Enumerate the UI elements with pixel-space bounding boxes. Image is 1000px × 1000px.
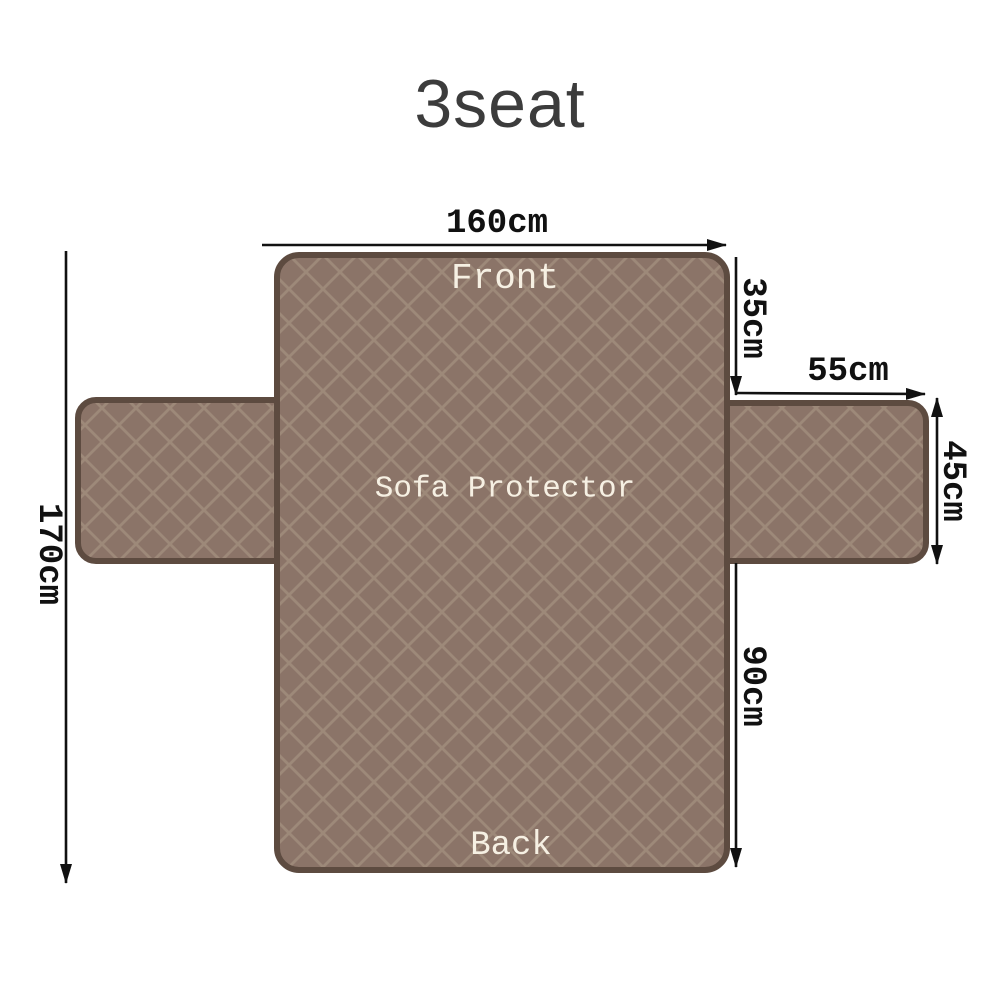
sofa-cover-body	[277, 255, 727, 870]
dimension-label-length-total: 170cm	[31, 503, 65, 605]
fabric-label-front: Front	[451, 261, 559, 297]
fabric-label-back: Back	[470, 829, 552, 863]
dimension-label-width-total: 160cm	[446, 207, 548, 241]
page-title: 3seat	[414, 70, 585, 138]
sofa-cover-shape	[78, 255, 926, 870]
dimension-label-armrest-length: 55cm	[807, 355, 889, 389]
dimension-label-armrest-width: 45cm	[935, 440, 969, 522]
fabric-label-product-name: Sofa Protector	[375, 474, 635, 505]
dimension-label-front-depth: 35cm	[735, 277, 769, 359]
sofa-cover-right-arm	[697, 403, 926, 561]
dim-arrow-armrest-length	[736, 393, 925, 394]
product-dimension-page: 3seat 160cm 35cm 55cm 45cm 90cm 170cm Fr…	[0, 0, 1000, 1000]
dimension-label-back-depth: 90cm	[735, 645, 769, 727]
sofa-cover-left-arm	[78, 400, 308, 561]
